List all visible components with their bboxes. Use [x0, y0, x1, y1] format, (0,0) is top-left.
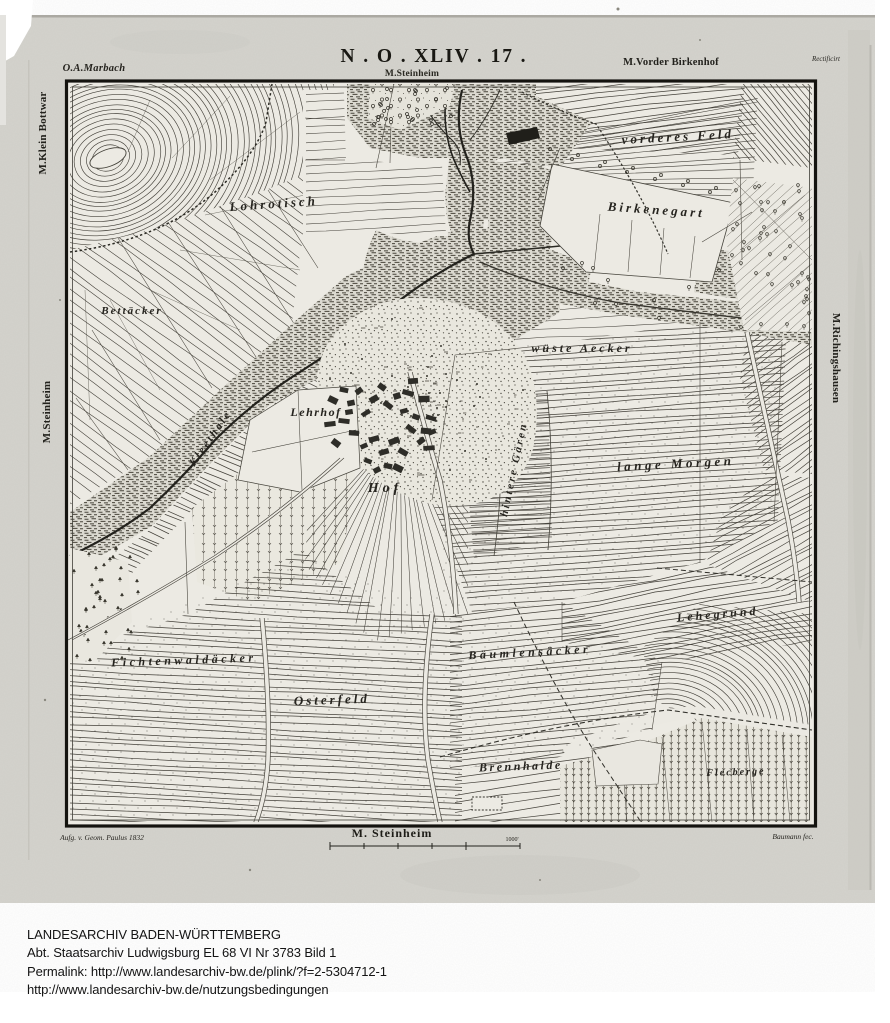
svg-text:Aufg. v. Geom. Paulus 1832: Aufg. v. Geom. Paulus 1832	[59, 833, 144, 842]
svg-text:1000': 1000'	[505, 837, 518, 843]
svg-text:Rectificirt: Rectificirt	[811, 55, 841, 63]
svg-text:O.A.Marbach: O.A.Marbach	[63, 63, 126, 74]
svg-text:M.Richingshausen: M.Richingshausen	[830, 313, 842, 403]
svg-text:Baumann fec.: Baumann fec.	[772, 832, 813, 841]
svg-text:M.Klein Bottwar: M.Klein Bottwar	[37, 91, 49, 174]
svg-text:M. Steinheim: M. Steinheim	[352, 826, 433, 840]
svg-text:Brennhalde: Brennhalde	[478, 758, 563, 775]
svg-text:Hof: Hof	[367, 481, 403, 496]
svg-text:Bettäcker: Bettäcker	[100, 305, 162, 317]
svg-text:Lehrhof: Lehrhof	[289, 405, 341, 419]
svg-text:Flecberge: Flecberge	[705, 766, 765, 779]
svg-text:M.Steinheim: M.Steinheim	[41, 381, 53, 443]
svg-text:M.Steinheim: M.Steinheim	[385, 69, 439, 79]
svg-text:M.Vorder Birkenhof: M.Vorder Birkenhof	[623, 57, 719, 68]
svg-text:N . O . XLIV . 17 .: N . O . XLIV . 17 .	[341, 46, 528, 67]
svg-text:Osterfeld: Osterfeld	[294, 691, 371, 709]
svg-text:wüste Aecker: wüste Aecker	[531, 341, 632, 355]
